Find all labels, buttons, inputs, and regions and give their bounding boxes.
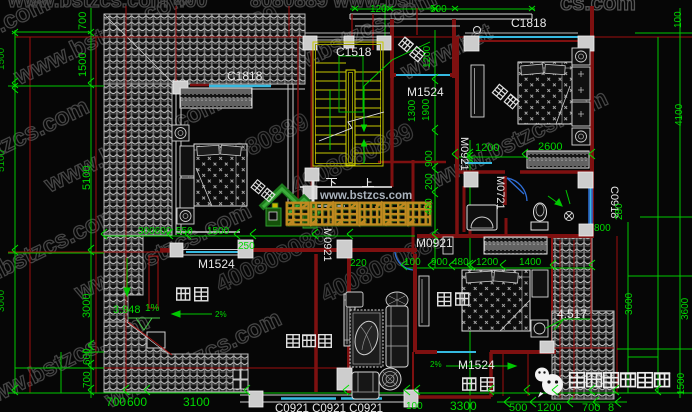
svg-text:400: 400 [424, 198, 435, 215]
svg-text:2%: 2% [215, 310, 227, 319]
svg-text:120: 120 [370, 4, 387, 15]
svg-text:700: 700 [106, 395, 126, 409]
svg-text:M0921: M0921 [321, 228, 333, 262]
svg-text:cs.com: cs.com [560, 0, 636, 15]
svg-text:M1524: M1524 [407, 85, 444, 99]
svg-text:4.517: 4.517 [557, 307, 587, 321]
svg-text:480: 480 [452, 257, 469, 268]
svg-text:3300: 3300 [450, 399, 477, 412]
svg-text:3000: 3000 [0, 289, 7, 312]
svg-text:700: 700 [77, 12, 89, 30]
svg-text:900: 900 [431, 257, 448, 268]
svg-text:1500: 1500 [77, 53, 89, 77]
svg-text:1200: 1200 [537, 402, 561, 412]
svg-text:280: 280 [614, 203, 625, 220]
svg-text:C1818: C1818 [511, 16, 547, 30]
svg-text:M0921: M0921 [458, 137, 470, 171]
svg-text:1500: 1500 [676, 372, 687, 395]
svg-text:1400: 1400 [519, 257, 542, 268]
svg-text:8: 8 [608, 402, 614, 412]
svg-text:M1524: M1524 [458, 358, 495, 372]
svg-text:2%: 2% [430, 360, 442, 369]
svg-text:3100: 3100 [183, 395, 210, 409]
svg-text:700: 700 [82, 371, 93, 388]
svg-text:1500: 1500 [0, 47, 7, 70]
svg-text:800: 800 [594, 223, 611, 234]
svg-text:C0921 C0921 C0921: C0921 C0921 C0921 [275, 403, 383, 412]
svg-text:3600: 3600 [624, 292, 635, 315]
svg-text:2600: 2600 [538, 141, 562, 153]
svg-text:1500: 1500 [207, 226, 230, 237]
svg-text:5100: 5100 [0, 149, 7, 172]
svg-text:500: 500 [430, 4, 447, 15]
svg-text:8080889 www.bst: 8080889 www.bst [250, 0, 415, 12]
svg-text:C1518: C1518 [336, 45, 372, 59]
svg-text:100: 100 [404, 257, 421, 268]
svg-text:www.bstzcs.com 400: www.bstzcs.com 400 [7, 0, 207, 12]
svg-text:1200: 1200 [475, 142, 499, 154]
svg-text:1900: 1900 [421, 98, 432, 121]
svg-text:500: 500 [509, 402, 527, 412]
svg-text:200: 200 [424, 173, 435, 190]
svg-text:550: 550 [176, 226, 193, 237]
svg-text:600: 600 [127, 395, 147, 409]
svg-text:700: 700 [582, 402, 600, 412]
svg-text:3000: 3000 [81, 294, 93, 318]
svg-text:100: 100 [406, 401, 423, 412]
svg-text:1200: 1200 [476, 257, 499, 268]
svg-text:1200: 1200 [422, 45, 433, 68]
svg-text:M0921: M0921 [416, 236, 453, 250]
svg-text:1300: 1300 [407, 99, 418, 122]
svg-text:3.948: 3.948 [113, 304, 141, 316]
svg-text:C1818: C1818 [227, 69, 263, 83]
svg-text:M1524: M1524 [198, 257, 235, 271]
svg-text:100: 100 [673, 11, 684, 28]
svg-text:220: 220 [350, 258, 367, 269]
svg-text:300600: 300600 [138, 226, 172, 237]
svg-text:M0721: M0721 [494, 176, 506, 210]
svg-text:250: 250 [238, 241, 255, 252]
svg-text:4100: 4100 [674, 103, 685, 126]
svg-text:www.bstzcs.com: www.bstzcs.com [319, 190, 412, 202]
svg-text:3600: 3600 [680, 297, 691, 320]
svg-text:5100: 5100 [81, 166, 93, 190]
svg-text:900: 900 [424, 150, 435, 167]
svg-text:1%: 1% [145, 303, 160, 314]
